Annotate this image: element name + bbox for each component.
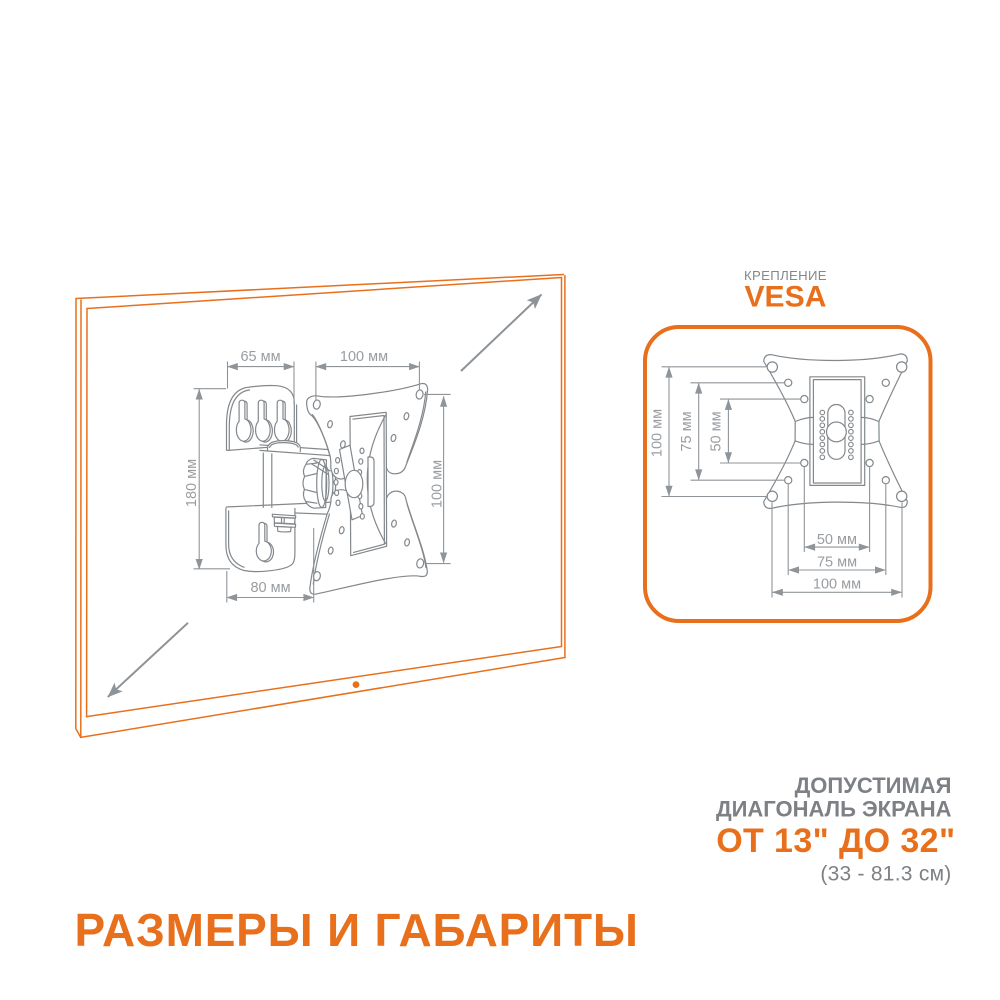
svg-text:50 мм: 50 мм: [817, 532, 857, 548]
svg-text:75 мм: 75 мм: [679, 411, 695, 451]
svg-text:100 мм: 100 мм: [650, 409, 666, 457]
svg-text:100 мм: 100 мм: [340, 349, 388, 365]
svg-text:65 мм: 65 мм: [240, 349, 280, 365]
svg-text:ОТ 13" ДО 32": ОТ 13" ДО 32": [716, 822, 955, 860]
svg-text:100 мм: 100 мм: [430, 460, 446, 508]
svg-text:100 мм: 100 мм: [813, 577, 861, 593]
svg-text:ДОПУСТИМАЯ: ДОПУСТИМАЯ: [795, 773, 952, 798]
svg-text:180 мм: 180 мм: [184, 459, 200, 507]
svg-text:РАЗМЕРЫ И ГАБАРИТЫ: РАЗМЕРЫ И ГАБАРИТЫ: [75, 904, 639, 956]
svg-text:ДИАГОНАЛЬ ЭКРАНА: ДИАГОНАЛЬ ЭКРАНА: [716, 797, 952, 822]
svg-text:VESA: VESA: [744, 281, 826, 314]
svg-text:50 мм: 50 мм: [709, 411, 725, 451]
svg-text:80 мм: 80 мм: [250, 580, 290, 596]
svg-text:(33 - 81.3 см): (33 - 81.3 см): [820, 863, 951, 886]
svg-text:75 мм: 75 мм: [817, 555, 857, 571]
